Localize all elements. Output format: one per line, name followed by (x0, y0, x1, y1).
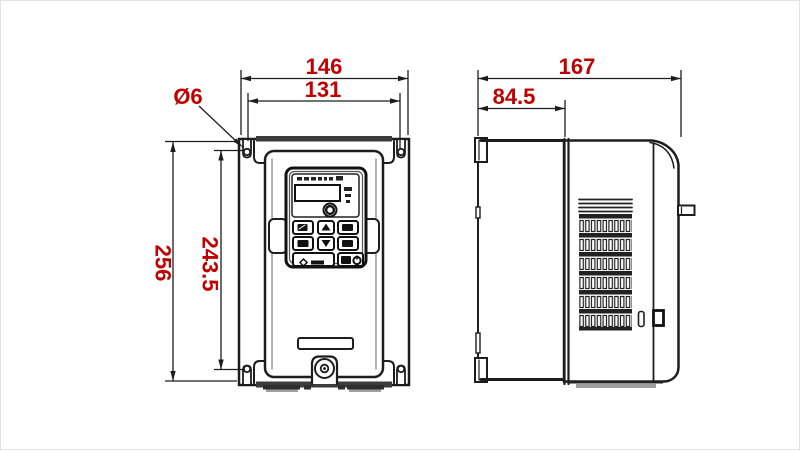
side-view (475, 138, 695, 388)
plate-notch-upper (476, 207, 480, 218)
keypad-panel (286, 168, 366, 267)
dim-label-131: 131 (305, 77, 342, 102)
cover-screw-center (323, 367, 326, 370)
arrowhead (478, 106, 488, 111)
grille-bottom-band (579, 327, 632, 331)
arrowhead (170, 371, 175, 381)
mount-hole-top-left (244, 149, 250, 155)
mount-hole-bottom-right (398, 366, 404, 372)
vent-grille (579, 200, 632, 331)
arrowhead (555, 106, 565, 111)
mount-hole-top-right (398, 149, 404, 155)
arrowhead (170, 142, 175, 152)
vfd-dimension-drawing: 146 131 Ø6 256 (1, 1, 800, 451)
arrowhead (218, 151, 223, 161)
front-top-rib (256, 136, 392, 142)
front-shadow-left (266, 390, 298, 393)
plate-notch-lower (476, 333, 480, 353)
dim-side-mount-depth: 84.5 (478, 84, 565, 137)
lcd-display (295, 185, 340, 201)
cover-slot (639, 312, 645, 327)
dim-label-243-5: 243.5 (198, 236, 223, 291)
dim-label-84-5: 84.5 (493, 84, 536, 109)
front-view (239, 136, 409, 392)
stop-key-icon (341, 256, 351, 264)
side-hook-tab (678, 206, 695, 216)
run-key-bar-icon (311, 261, 324, 265)
dim-label-256: 256 (151, 245, 176, 282)
keypad-left-ear (269, 219, 287, 253)
arrowhead (478, 76, 488, 81)
dim-label-167: 167 (559, 54, 596, 79)
shift-key-icon (342, 224, 353, 231)
arrowhead (218, 360, 223, 370)
side-shadow (576, 384, 656, 388)
side-bottom-edge (568, 381, 663, 384)
dim-front-overall-height: 256 (151, 142, 238, 382)
grille-louvers (579, 214, 632, 327)
arrowhead (398, 76, 408, 81)
dimension-drawing-canvas: 146 131 Ø6 256 (0, 0, 800, 450)
prg-key-icon (298, 224, 308, 231)
arrowhead (671, 76, 681, 81)
esc-key-icon (298, 240, 309, 247)
cover-latch (654, 311, 664, 326)
front-shadow-right (349, 390, 381, 393)
dim-label-hole-diameter: Ø6 (173, 84, 202, 109)
arrowhead (248, 98, 258, 103)
nameplate-slot (298, 338, 353, 349)
enter-key-icon (342, 240, 353, 247)
arrowhead (390, 98, 400, 103)
power-icon-tick (356, 256, 358, 260)
dim-label-146: 146 (306, 54, 343, 79)
arrowhead (241, 76, 251, 81)
leader-line (199, 106, 237, 142)
dim-hole-diameter: Ø6 (173, 84, 243, 148)
